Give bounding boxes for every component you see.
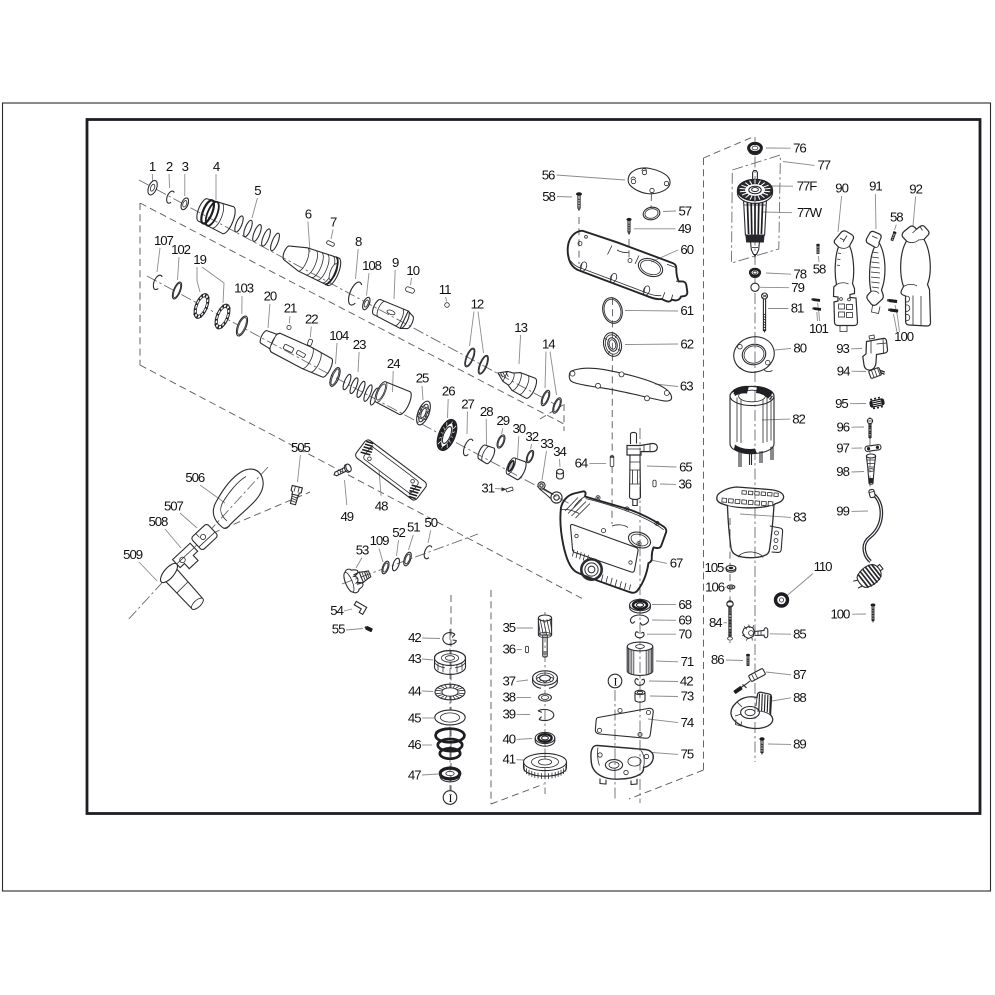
svg-text:33: 33	[540, 436, 553, 451]
svg-text:58: 58	[542, 189, 555, 204]
svg-text:91: 91	[869, 179, 882, 194]
svg-text:67: 67	[670, 556, 683, 571]
svg-text:77: 77	[818, 158, 831, 173]
svg-text:49: 49	[341, 509, 354, 524]
svg-text:506: 506	[185, 470, 205, 485]
svg-text:76: 76	[793, 140, 806, 155]
svg-text:60: 60	[680, 242, 693, 257]
svg-text:29: 29	[497, 413, 510, 428]
svg-text:63: 63	[680, 379, 693, 394]
svg-text:505: 505	[291, 440, 311, 455]
svg-text:71: 71	[681, 654, 694, 669]
svg-text:92: 92	[909, 181, 922, 196]
svg-text:98: 98	[836, 464, 849, 479]
svg-text:104: 104	[329, 328, 349, 343]
svg-text:34: 34	[553, 444, 566, 459]
svg-text:43: 43	[408, 651, 421, 666]
svg-text:37: 37	[503, 673, 516, 688]
svg-text:39: 39	[503, 707, 516, 722]
svg-text:47: 47	[408, 768, 421, 783]
svg-text:44: 44	[408, 683, 421, 698]
svg-text:13: 13	[514, 320, 527, 335]
svg-text:24: 24	[387, 356, 400, 371]
svg-text:42: 42	[680, 674, 693, 689]
svg-text:62: 62	[680, 336, 693, 351]
svg-text:51: 51	[407, 520, 420, 535]
svg-text:50: 50	[424, 515, 437, 530]
svg-text:73: 73	[681, 689, 694, 704]
svg-text:88: 88	[793, 690, 806, 705]
svg-text:5: 5	[254, 183, 261, 198]
svg-text:52: 52	[392, 525, 405, 540]
svg-text:54: 54	[330, 603, 343, 618]
svg-text:46: 46	[408, 737, 421, 752]
svg-text:101: 101	[809, 321, 829, 336]
svg-text:19: 19	[193, 252, 206, 267]
svg-text:30: 30	[513, 421, 526, 436]
svg-text:35: 35	[503, 620, 516, 635]
svg-text:102: 102	[171, 242, 191, 257]
svg-text:36: 36	[678, 477, 691, 492]
svg-text:64: 64	[575, 456, 588, 471]
svg-text:80: 80	[793, 341, 806, 356]
svg-text:58: 58	[813, 262, 826, 277]
svg-text:81: 81	[791, 301, 804, 316]
svg-text:90: 90	[835, 181, 848, 196]
svg-text:94: 94	[837, 363, 850, 378]
svg-text:28: 28	[480, 404, 493, 419]
svg-text:77F: 77F	[797, 178, 818, 193]
svg-text:40: 40	[503, 731, 516, 746]
svg-text:10: 10	[406, 263, 419, 278]
svg-text:12: 12	[471, 297, 484, 312]
svg-text:97: 97	[836, 440, 849, 455]
svg-text:38: 38	[503, 690, 516, 705]
svg-text:69: 69	[678, 613, 691, 628]
svg-text:105: 105	[704, 560, 724, 575]
svg-text:103: 103	[234, 281, 254, 296]
svg-text:56: 56	[542, 167, 555, 182]
svg-text:108: 108	[362, 258, 382, 273]
svg-text:14: 14	[542, 337, 555, 352]
svg-text:87: 87	[793, 667, 806, 682]
svg-text:31: 31	[481, 480, 494, 495]
svg-text:86: 86	[711, 652, 724, 667]
svg-text:22: 22	[305, 312, 318, 327]
svg-text:36: 36	[503, 642, 516, 657]
svg-text:85: 85	[793, 626, 806, 641]
svg-text:20: 20	[264, 289, 277, 304]
svg-text:3: 3	[182, 159, 189, 174]
svg-text:58: 58	[890, 209, 903, 224]
svg-text:48: 48	[375, 498, 388, 513]
svg-text:110: 110	[814, 559, 833, 574]
svg-text:32: 32	[525, 429, 538, 444]
svg-text:2: 2	[166, 159, 173, 174]
svg-text:75: 75	[681, 747, 694, 762]
svg-text:93: 93	[836, 341, 849, 356]
svg-text:53: 53	[356, 542, 369, 557]
svg-text:89: 89	[793, 737, 806, 752]
svg-text:100: 100	[830, 606, 850, 621]
svg-text:68: 68	[678, 597, 691, 612]
svg-text:26: 26	[442, 384, 455, 399]
svg-text:45: 45	[408, 710, 421, 725]
svg-text:9: 9	[392, 255, 399, 270]
svg-text:65: 65	[679, 459, 692, 474]
svg-text:21: 21	[284, 301, 297, 316]
svg-text:25: 25	[416, 371, 429, 386]
svg-text:70: 70	[678, 626, 691, 641]
svg-text:508: 508	[148, 514, 168, 529]
svg-text:41: 41	[503, 752, 516, 767]
svg-text:79: 79	[791, 280, 804, 295]
svg-text:27: 27	[461, 396, 474, 411]
svg-text:507: 507	[164, 498, 184, 513]
svg-text:8: 8	[355, 234, 362, 249]
svg-text:6: 6	[305, 207, 312, 222]
svg-text:57: 57	[679, 203, 692, 218]
svg-text:7: 7	[330, 215, 337, 230]
svg-text:95: 95	[835, 396, 848, 411]
svg-text:55: 55	[332, 622, 345, 637]
svg-text:106: 106	[705, 580, 725, 595]
svg-text:77W: 77W	[797, 205, 823, 220]
svg-text:96: 96	[837, 419, 850, 434]
svg-text:74: 74	[681, 715, 694, 730]
svg-text:49: 49	[678, 221, 691, 236]
svg-text:84: 84	[709, 615, 722, 630]
svg-text:11: 11	[439, 282, 451, 297]
svg-text:99: 99	[836, 504, 849, 519]
svg-text:1: 1	[149, 159, 156, 174]
svg-text:42: 42	[408, 630, 421, 645]
svg-text:23: 23	[353, 337, 366, 352]
svg-text:82: 82	[792, 411, 805, 426]
svg-text:509: 509	[123, 547, 143, 562]
svg-text:4: 4	[213, 159, 220, 174]
svg-text:83: 83	[793, 510, 806, 525]
svg-text:61: 61	[680, 303, 693, 318]
svg-text:109: 109	[370, 533, 390, 548]
